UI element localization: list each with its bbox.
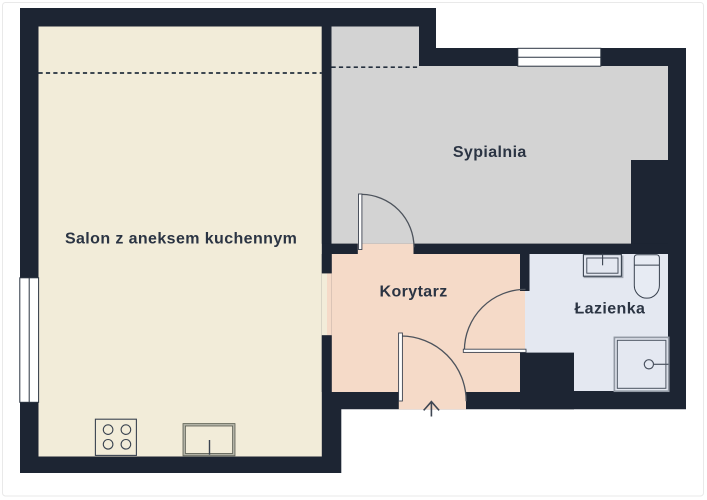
svg-text:Korytarz: Korytarz [380, 283, 448, 300]
svg-text:Sypialnia: Sypialnia [453, 144, 527, 161]
svg-text:Łazienka: Łazienka [575, 300, 646, 317]
svg-text:Salon z aneksem kuchennym: Salon z aneksem kuchennym [65, 231, 297, 248]
